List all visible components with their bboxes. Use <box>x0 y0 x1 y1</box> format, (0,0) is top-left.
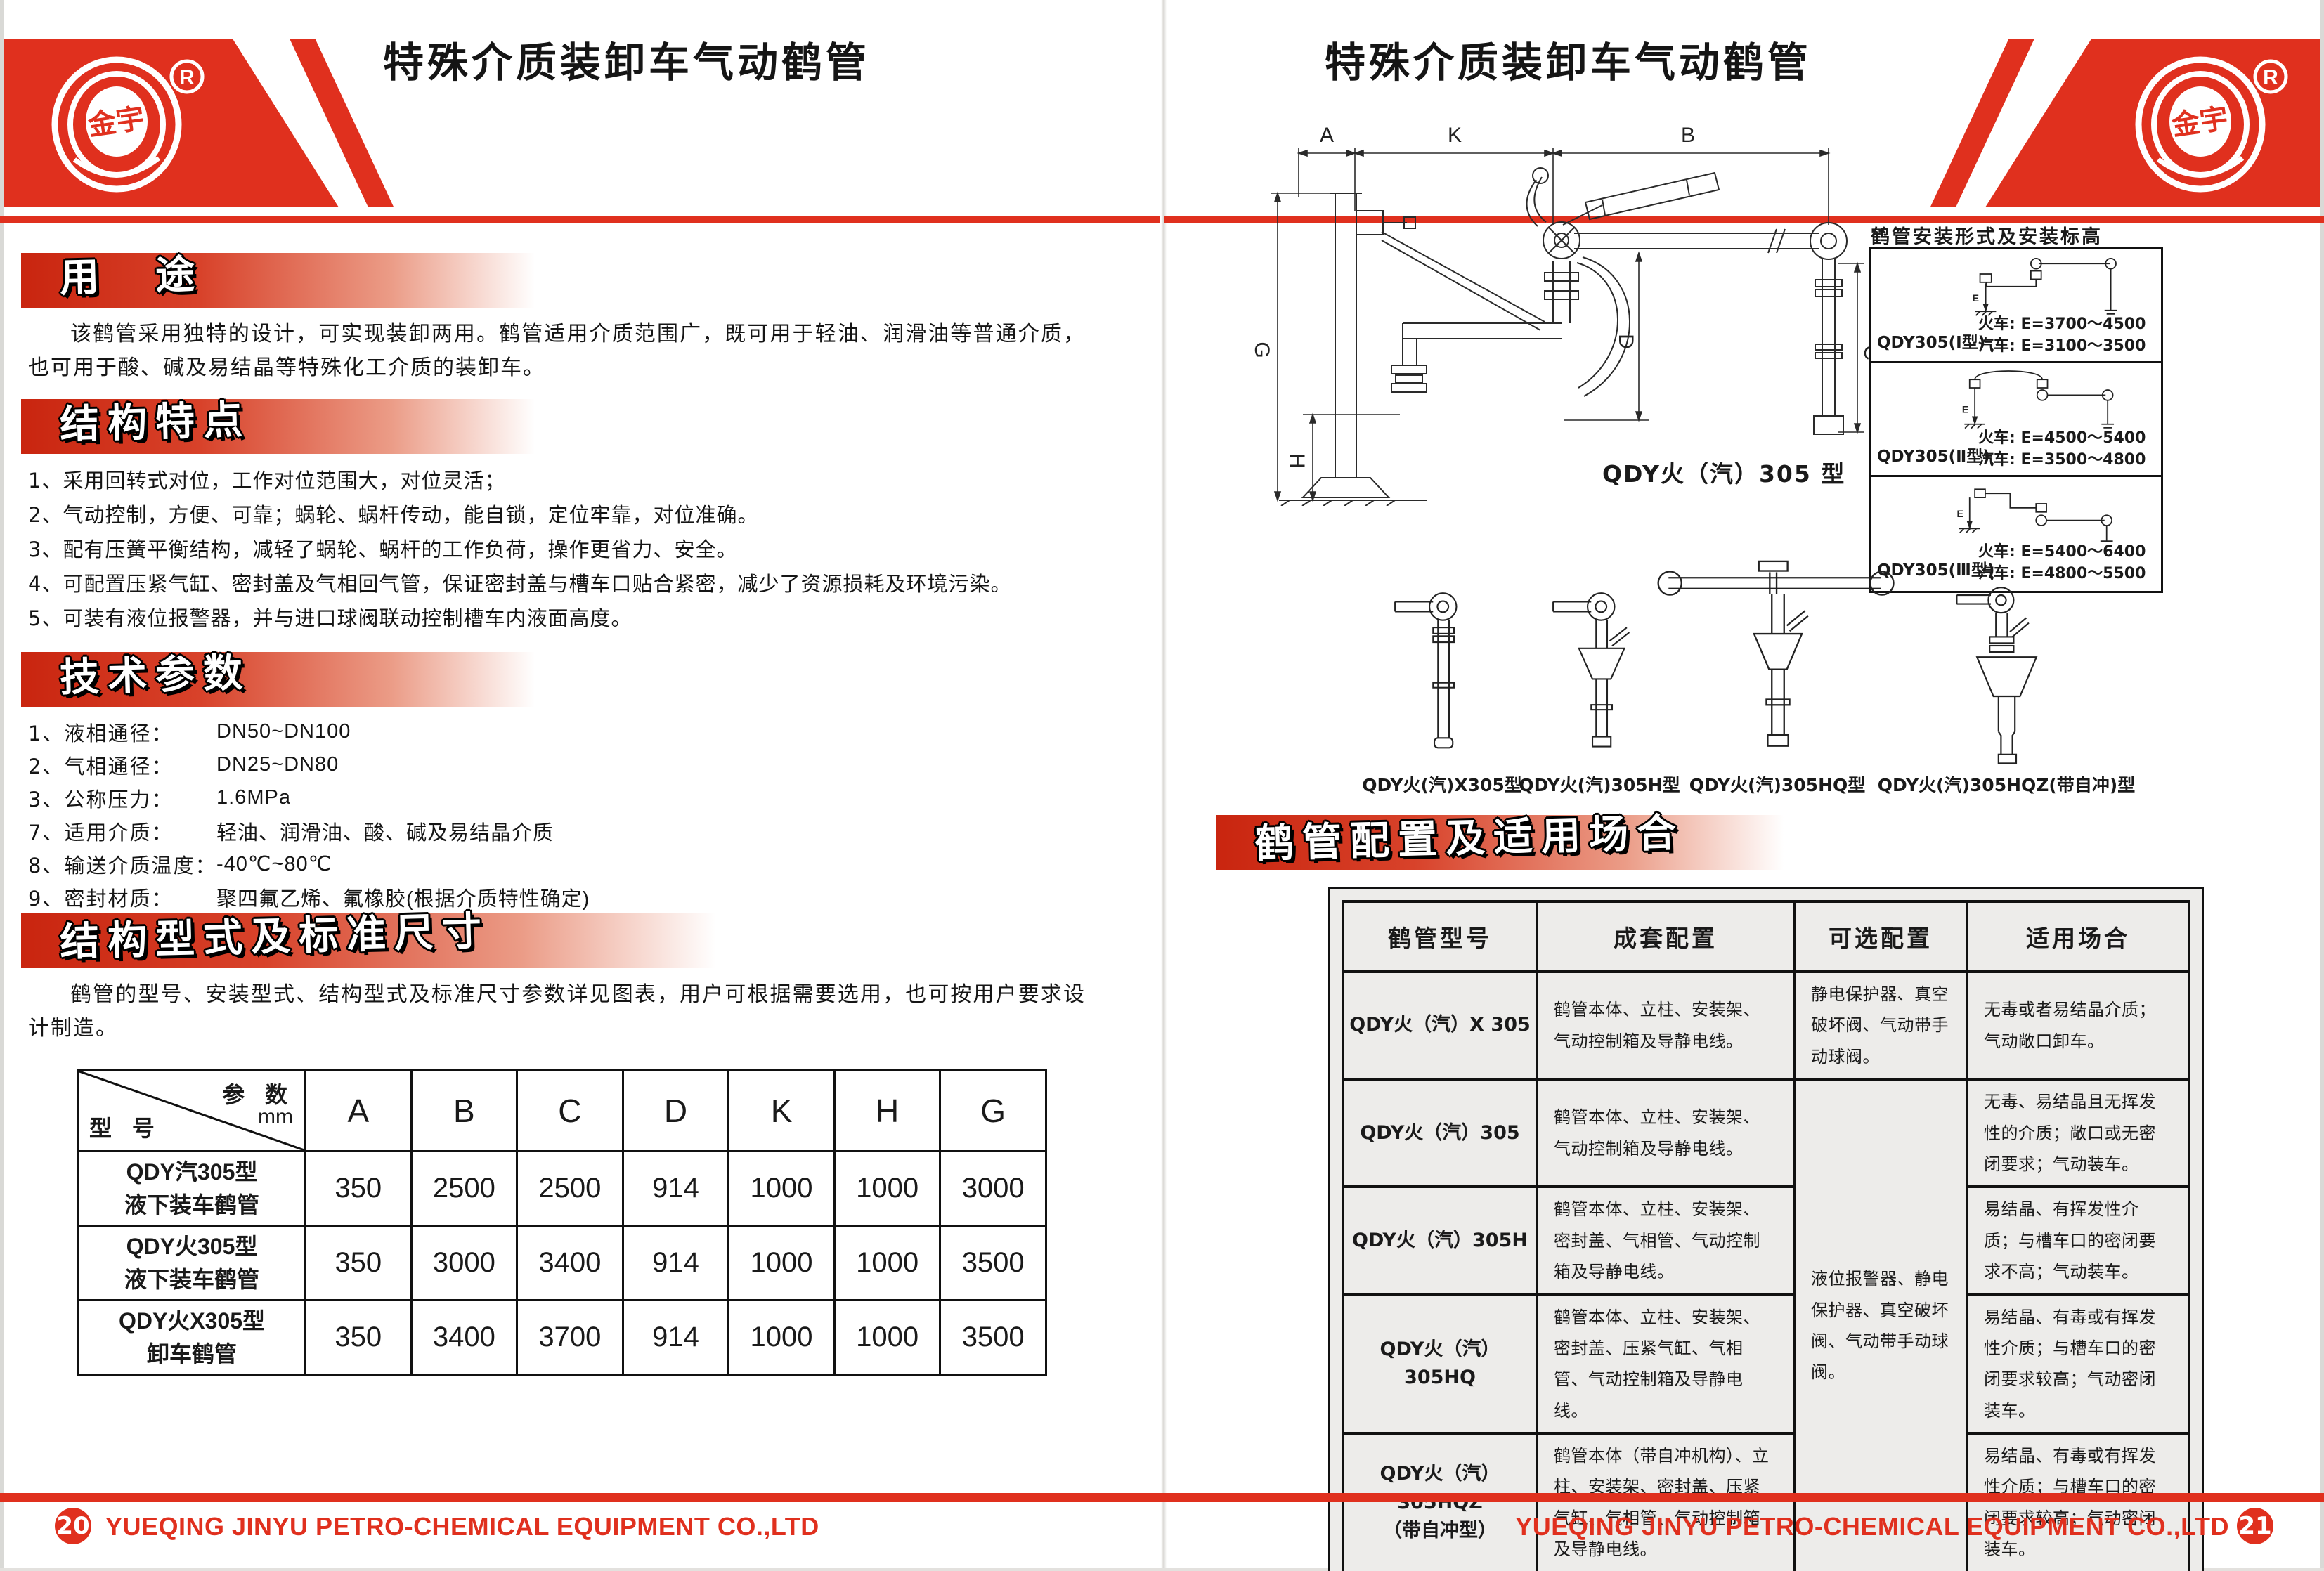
page-number-left: 20 <box>55 1508 91 1544</box>
dim-label-d: D <box>1614 334 1637 349</box>
structure-paragraph: 鹤管的型号、安装型式、结构型式及标准尺寸参数详见图表，用户可根据需要选用，也可按… <box>28 978 1086 1045</box>
footer-rule <box>0 1493 2324 1502</box>
section-title-config: 鹤管配置及适用场合 <box>1254 801 1685 869</box>
config-set: 鹤管本体、立柱、安装架、密封盖、气相管、气动控制箱及导静电线。 <box>1537 1187 1794 1294</box>
features-list: 1、采用回转式对位，工作对位范围大，对位灵活； 2、气动控制，方便、可靠；蜗轮、… <box>28 464 1124 636</box>
install-panel-1: E QDY305(Ⅰ型) 火车: E=3700～4500 汽车: E=3100～… <box>1871 249 2161 363</box>
feature-item: 1、采用回转式对位，工作对位范围大，对位灵活； <box>28 464 1124 498</box>
column-header: A <box>306 1071 412 1152</box>
e-dim-label: E <box>1957 508 1963 519</box>
registered-icon: R <box>2263 66 2278 89</box>
param-label: 7、适用介质： <box>28 816 216 846</box>
param-value: DN25~DN80 <box>216 753 339 776</box>
config-row: QDY火（汽）X 305 鹤管本体、立柱、安装架、气动控制箱及导静电线。 静电保… <box>1343 972 2189 1079</box>
config-header: 适用场合 <box>1967 901 2189 972</box>
company-name-left: YUEQING JINYU PETRO-CHEMICAL EQUIPMENT C… <box>105 1512 819 1541</box>
registered-icon: R <box>179 66 195 89</box>
param-value: DN50~DN100 <box>216 720 351 743</box>
config-usage: 易结晶、有毒或有挥发性介质；与槽车口的密闭要求较高；气动密闭装车。 <box>1967 1295 2189 1434</box>
section-bar-features: 结构特点 <box>21 399 618 454</box>
param-label: 1、液相通径： <box>28 717 216 747</box>
value-cell: 3500 <box>940 1226 1046 1301</box>
train-elevation: 火车: E=5400～6400 <box>1978 541 2146 563</box>
variant-drawing-305hqz <box>1933 576 2087 766</box>
config-set: 鹤管本体、立柱、安装架、密封盖、压紧气缸、气相管、气动控制箱及导静电线。 <box>1537 1295 1794 1434</box>
config-row: QDY火（汽）305 鹤管本体、立柱、安装架、气动控制箱及导静电线。 液位报警器… <box>1343 1079 2189 1187</box>
dim-label-g: G <box>1250 341 1273 358</box>
install-elevations: 火车: E=4500～5400 汽车: E=3500～4800 <box>1978 427 2146 471</box>
column-header: H <box>834 1071 940 1152</box>
brand-logo-icon: 金宇 R <box>2130 54 2292 195</box>
table-row: QDY汽305型 液下装车鹤管 350 2500 2500 914 1000 1… <box>79 1152 1046 1226</box>
value-cell: 2500 <box>517 1152 623 1226</box>
header-banner-right: 金宇 R <box>1926 39 2320 207</box>
param-label: 8、输送介质温度： <box>28 849 216 879</box>
param-value: 轻油、润滑油、酸、碱及易结晶介质 <box>216 816 554 846</box>
param-label: 2、气相通径： <box>28 750 216 780</box>
brand-logo-icon: 金宇 R <box>46 54 208 195</box>
value-cell: 3000 <box>940 1152 1046 1226</box>
section-title-params: 技术参数 <box>59 641 252 703</box>
column-header: C <box>517 1071 623 1152</box>
install-schematic-1: E <box>1874 252 2155 320</box>
config-row: QDY火（汽）305HQZ （带自冲型） 鹤管本体（带自冲机构）、立柱、安装架、… <box>1343 1433 2189 1571</box>
page-edge-left <box>0 0 4 1571</box>
table-corner-cell: 参 数 mm 型 号 <box>79 1071 306 1152</box>
config-model: QDY火（汽）305HQ <box>1343 1295 1537 1434</box>
config-usage: 无毒或者易结晶介质；气动敞口卸车。 <box>1967 972 2189 1079</box>
install-schematic-2: E <box>1874 366 2155 434</box>
param-row: 1、液相通径： DN50~DN100 <box>28 715 590 748</box>
section-bar-config: 鹤管配置及适用场合 <box>1216 815 1876 870</box>
install-elevations: 火车: E=3700～4500 汽车: E=3100～3500 <box>1978 313 2146 357</box>
page-seam <box>1161 0 1167 1571</box>
variant-label: QDY火(汽)X305型 <box>1362 771 1522 797</box>
value-cell: 1000 <box>729 1152 835 1226</box>
install-box-title: 鹤管安装形式及安装标高 <box>1871 221 2103 249</box>
dim-label-k: K <box>1448 124 1462 147</box>
config-header: 可选配置 <box>1794 901 1967 972</box>
config-table-wrapper: 鹤管型号 成套配置 可选配置 适用场合 QDY火（汽）X 305 鹤管本体、立柱… <box>1328 887 2204 1571</box>
page-edge-right <box>2320 0 2324 1571</box>
column-header: K <box>729 1071 835 1152</box>
config-set: 鹤管本体、立柱、安装架、气动控制箱及导静电线。 <box>1537 972 1794 1079</box>
variant-label: QDY火(汽)305HQZ(带自冲)型 <box>1878 771 2135 797</box>
feature-item: 3、配有压簧平衡结构，减轻了蜗轮、蜗杆的工作负荷，操作更省力、安全。 <box>28 533 1124 567</box>
value-cell: 1000 <box>729 1226 835 1301</box>
value-cell: 3700 <box>517 1301 623 1375</box>
truck-elevation: 汽车: E=3500～4800 <box>1978 449 2146 471</box>
param-row: 3、公称压力： 1.6MPa <box>28 781 590 814</box>
usage-paragraph: 该鹤管采用独特的设计，可实现装卸两用。鹤管适用介质范围广，既可用于轻油、润滑油等… <box>28 318 1086 385</box>
dimension-table: 参 数 mm 型 号 A B C D K H G QDY汽305型 液下装车鹤管… <box>77 1069 1047 1376</box>
variant-drawing-305hq <box>1651 559 1904 764</box>
feature-item: 4、可配置压紧气缸、密封盖及气相回气管，保证密封盖与槽车口贴合紧密，减少了资源损… <box>28 567 1124 601</box>
company-name-right: YUEQING JINYU PETRO-CHEMICAL EQUIPMENT C… <box>1515 1512 2229 1541</box>
variant-drawing-x305 <box>1367 580 1521 764</box>
corner-label-unit: mm <box>258 1105 293 1129</box>
page-number-right: 21 <box>2237 1508 2273 1544</box>
dim-label-h: H <box>1285 453 1309 469</box>
column-header: B <box>411 1071 517 1152</box>
install-schematic-3: E <box>1874 480 2155 547</box>
install-model: QDY305(Ⅱ型) <box>1877 443 1990 467</box>
config-model: QDY火（汽）305 <box>1343 1079 1537 1187</box>
e-dim-label: E <box>1973 292 1979 304</box>
config-usage: 易结晶、有毒或有挥发性介质；与槽车口的密闭要求较高；气动密闭装车。 <box>1967 1433 2189 1571</box>
param-label: 3、公称压力： <box>28 783 216 813</box>
config-header: 鹤管型号 <box>1343 901 1537 972</box>
param-row: 2、气相通径： DN25~DN80 <box>28 748 590 781</box>
value-cell: 914 <box>623 1226 729 1301</box>
config-header: 成套配置 <box>1537 901 1794 972</box>
config-usage: 无毒、易结晶且无挥发性的介质；敞口或无密闭要求；气动装车。 <box>1967 1079 2189 1187</box>
config-row: QDY火（汽）305HQ 鹤管本体、立柱、安装架、密封盖、压紧气缸、气相管、气动… <box>1343 1295 2189 1434</box>
value-cell: 1000 <box>834 1152 940 1226</box>
param-value: -40℃~80℃ <box>216 852 332 876</box>
value-cell: 3400 <box>411 1301 517 1375</box>
value-cell: 350 <box>306 1152 412 1226</box>
config-optional: 静电保护器、真空破坏阀、气动带手动球阀。 <box>1794 972 1967 1079</box>
value-cell: 1000 <box>729 1301 835 1375</box>
model-cell: QDY火305型 液下装车鹤管 <box>79 1226 306 1301</box>
value-cell: 914 <box>623 1301 729 1375</box>
column-header: D <box>623 1071 729 1152</box>
value-cell: 914 <box>623 1152 729 1226</box>
train-elevation: 火车: E=4500～5400 <box>1978 427 2146 449</box>
section-bar-structure: 结构型式及标准尺寸 <box>21 913 829 968</box>
config-model: QDY火（汽）305HQZ （带自冲型） <box>1343 1433 1537 1571</box>
value-cell: 3500 <box>940 1301 1046 1375</box>
drawing-caption: QDY火（汽）305 型 <box>1602 455 1845 489</box>
value-cell: 1000 <box>834 1226 940 1301</box>
install-model: QDY305(Ⅰ型) <box>1877 329 1985 353</box>
page-title-right: 特殊介质装卸车气动鹤管 <box>1325 30 1812 79</box>
dim-label-b: B <box>1681 124 1695 147</box>
config-set: 鹤管本体（带自冲机构）、立柱、安装架、密封盖、压紧气缸、气相管、气动控制箱及导静… <box>1537 1433 1794 1571</box>
config-header-row: 鹤管型号 成套配置 可选配置 适用场合 <box>1343 901 2189 972</box>
corner-label-model: 型 号 <box>89 1111 162 1143</box>
section-bar-usage: 用 途 <box>21 253 618 308</box>
dim-label-a: A <box>1320 124 1334 147</box>
model-cell: QDY汽305型 液下装车鹤管 <box>79 1152 306 1226</box>
install-box: E QDY305(Ⅰ型) 火车: E=3700～4500 汽车: E=3100～… <box>1869 247 2163 593</box>
value-cell: 350 <box>306 1226 412 1301</box>
param-row: 7、适用介质： 轻油、润滑油、酸、碱及易结晶介质 <box>28 814 590 847</box>
install-panel-3: E QDY305(Ⅲ型) 火车: E=5400～6400 汽车: E=4800～… <box>1871 477 2161 589</box>
param-value: 1.6MPa <box>216 786 291 809</box>
config-set: 鹤管本体、立柱、安装架、气动控制箱及导静电线。 <box>1537 1079 1794 1187</box>
config-model: QDY火（汽）X 305 <box>1343 972 1537 1079</box>
table-row: QDY火X305型 卸车鹤管 350 3400 3700 914 1000 10… <box>79 1301 1046 1375</box>
variant-label: QDY火(汽)305H型 <box>1519 771 1680 797</box>
page-title-left: 特殊介质装卸车气动鹤管 <box>383 30 870 79</box>
header-banner-left: 金宇 R <box>4 39 398 207</box>
variant-label: QDY火(汽)305HQ型 <box>1689 771 1866 797</box>
section-title-usage: 用 途 <box>59 242 204 303</box>
e-dim-label: E <box>1962 403 1968 415</box>
value-cell: 2500 <box>411 1152 517 1226</box>
value-cell: 3400 <box>517 1226 623 1301</box>
params-list: 1、液相通径： DN50~DN100 2、气相通径： DN25~DN80 3、公… <box>28 715 590 913</box>
value-cell: 1000 <box>834 1301 940 1375</box>
section-bar-params: 技术参数 <box>21 652 618 707</box>
train-elevation: 火车: E=3700～4500 <box>1978 313 2146 335</box>
header-rule-left <box>0 216 1160 223</box>
feature-item: 5、可装有液位报警器，并与进口球阀联动控制槽车内液面高度。 <box>28 601 1124 636</box>
section-title-features: 结构特点 <box>59 388 252 450</box>
config-table: 鹤管型号 成套配置 可选配置 适用场合 QDY火（汽）X 305 鹤管本体、立柱… <box>1342 900 2190 1571</box>
model-cell: QDY火X305型 卸车鹤管 <box>79 1301 306 1375</box>
config-model: QDY火（汽）305H <box>1343 1187 1537 1294</box>
catalog-spread: 金宇 R 特殊介质装卸车气动鹤管 金宇 R 特殊介质装卸车气动鹤管 用 途 该鹤… <box>0 0 2324 1571</box>
install-panel-2: E QDY305(Ⅱ型) 火车: E=4500～5400 汽车: E=3500～… <box>1871 363 2161 477</box>
config-usage: 易结晶、有挥发性介质；与槽车口的密闭要求不高；气动装车。 <box>1967 1187 2189 1294</box>
column-header: G <box>940 1071 1046 1152</box>
truck-elevation: 汽车: E=3100～3500 <box>1978 335 2146 357</box>
value-cell: 350 <box>306 1301 412 1375</box>
value-cell: 3000 <box>411 1226 517 1301</box>
param-row: 8、输送介质温度： -40℃~80℃ <box>28 847 590 880</box>
feature-item: 2、气动控制，方便、可靠；蜗轮、蜗杆传动，能自锁，定位牢靠，对位准确。 <box>28 498 1124 533</box>
table-row: QDY火305型 液下装车鹤管 350 3000 3400 914 1000 1… <box>79 1226 1046 1301</box>
loading-arm-drawing: A K B C D H G <box>1223 112 1876 506</box>
section-title-structure: 结构型式及标准尺寸 <box>59 899 491 967</box>
config-row: QDY火（汽）305H 鹤管本体、立柱、安装架、密封盖、气相管、气动控制箱及导静… <box>1343 1187 2189 1294</box>
